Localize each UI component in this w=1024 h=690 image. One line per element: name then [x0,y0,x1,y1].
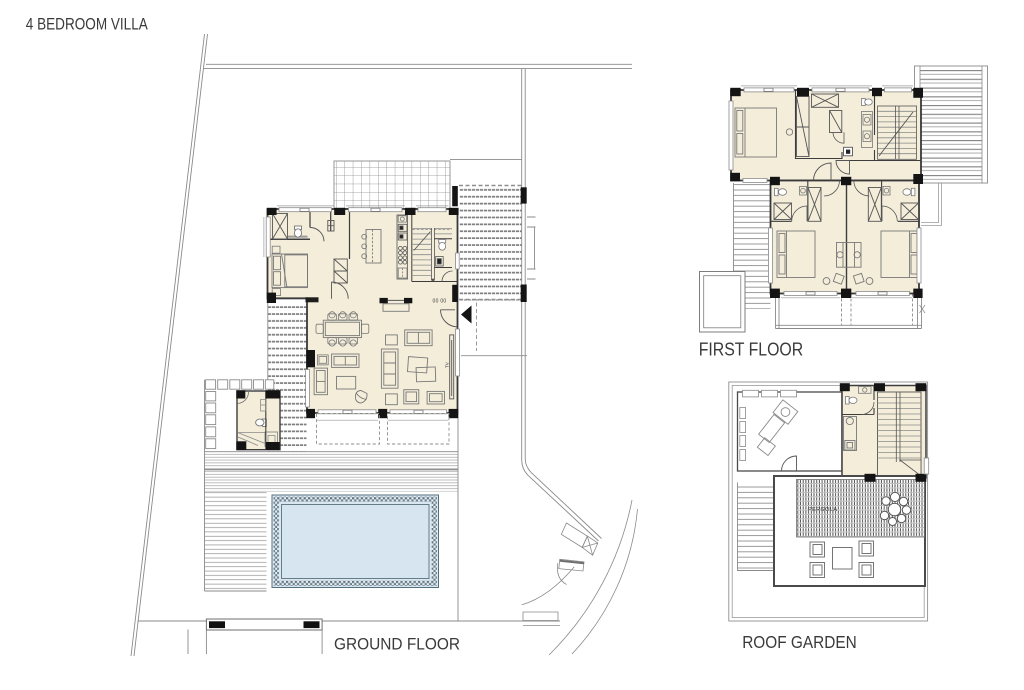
svg-text:ROOF GARDEN: ROOF GARDEN [742,632,857,652]
svg-text:GROUND FLOOR: GROUND FLOOR [334,635,460,654]
svg-text:PERGOLA: PERGOLA [808,507,837,513]
svg-text:4 BEDROOM VILLA: 4 BEDROOM VILLA [26,16,148,34]
svg-text:00 00: 00 00 [433,299,447,305]
svg-text:TV: TV [445,361,450,368]
svg-text:FIRST FLOOR: FIRST FLOOR [699,340,804,360]
